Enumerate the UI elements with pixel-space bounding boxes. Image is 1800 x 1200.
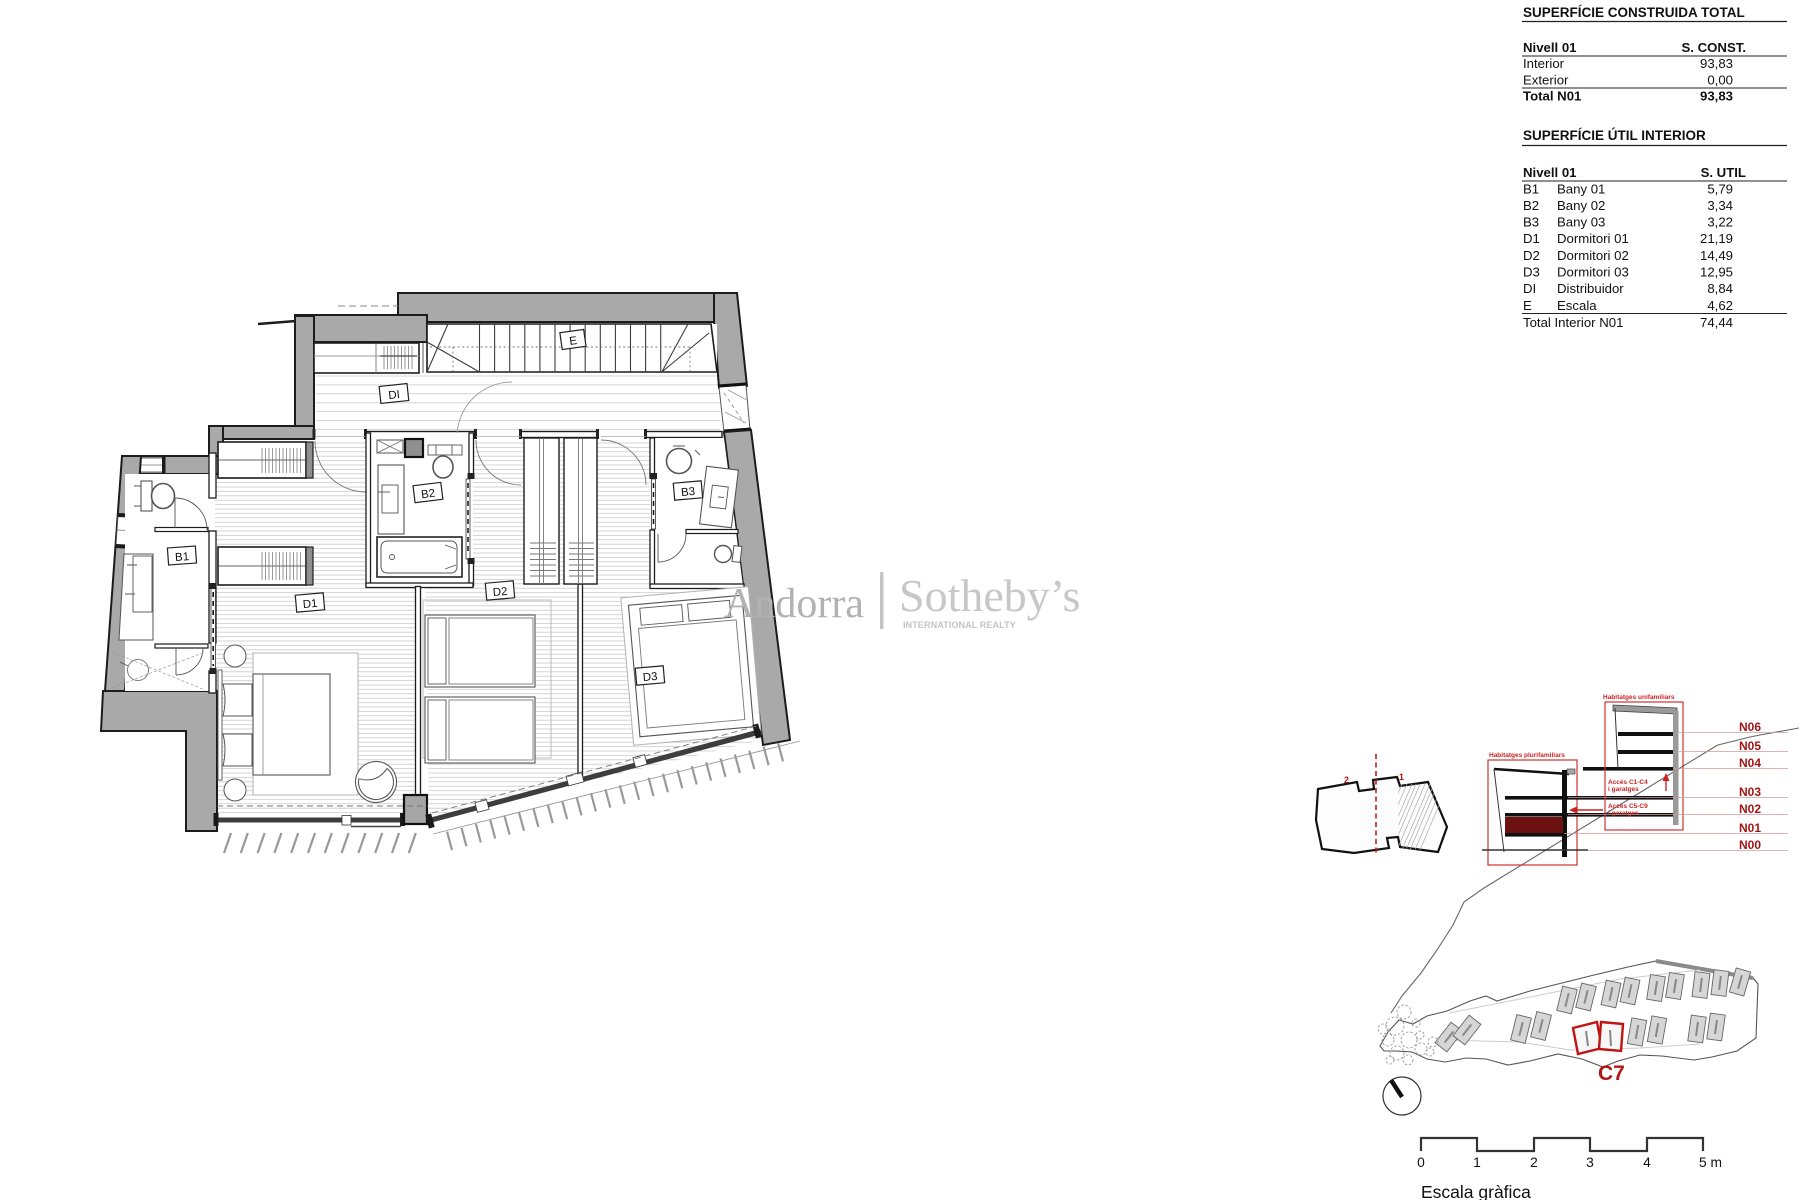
- svg-text:0: 0: [1417, 1155, 1425, 1170]
- svg-text:21,19: 21,19: [1700, 231, 1733, 246]
- svg-text:Bany 01: Bany 01: [1557, 182, 1605, 197]
- svg-text:3,34: 3,34: [1707, 198, 1733, 213]
- svg-text:B2: B2: [420, 488, 435, 502]
- svg-text:Dormitori 03: Dormitori 03: [1557, 265, 1629, 280]
- svg-text:2: 2: [1344, 775, 1349, 785]
- svg-text:Dormitori 02: Dormitori 02: [1557, 248, 1629, 263]
- svg-text:Nivell 01: Nivell 01: [1523, 40, 1577, 55]
- svg-text:i garatges: i garatges: [1608, 810, 1639, 817]
- svg-text:5 m: 5 m: [1699, 1155, 1722, 1170]
- svg-text:D3: D3: [1523, 265, 1540, 280]
- svg-text:12,95: 12,95: [1700, 265, 1733, 280]
- svg-text:N05: N05: [1739, 739, 1761, 753]
- svg-text:DI: DI: [388, 389, 401, 402]
- svg-text:Sotheby’s: Sotheby’s: [899, 570, 1080, 621]
- svg-text:14,49: 14,49: [1700, 248, 1733, 263]
- svg-text:DI: DI: [1523, 281, 1536, 296]
- svg-text:D1: D1: [302, 598, 318, 611]
- svg-text:Total N01: Total N01: [1523, 89, 1581, 104]
- svg-text:Escala: Escala: [1557, 298, 1597, 313]
- svg-text:Total Interior N01: Total Interior N01: [1523, 315, 1623, 330]
- svg-text:N04: N04: [1739, 756, 1761, 770]
- svg-text:4,62: 4,62: [1707, 298, 1733, 313]
- svg-text:74,44: 74,44: [1700, 315, 1733, 330]
- svg-text:B1: B1: [175, 551, 190, 564]
- svg-text:S. CONST.: S. CONST.: [1682, 40, 1746, 55]
- svg-text:93,83: 93,83: [1700, 89, 1733, 104]
- svg-text:Interior: Interior: [1523, 56, 1565, 71]
- svg-text:D1: D1: [1523, 231, 1540, 246]
- svg-text:Accés C5-C9: Accés C5-C9: [1608, 803, 1648, 810]
- svg-text:D3: D3: [642, 671, 658, 684]
- svg-text:2: 2: [1530, 1155, 1538, 1170]
- svg-text:Bany 02: Bany 02: [1557, 198, 1605, 213]
- svg-text:B3: B3: [1523, 215, 1539, 230]
- svg-text:1: 1: [1399, 772, 1404, 782]
- svg-text:B3: B3: [681, 486, 696, 499]
- svg-text:Habitatges plurifamiliars: Habitatges plurifamiliars: [1489, 752, 1565, 759]
- svg-text:B2: B2: [1523, 198, 1539, 213]
- svg-text:3: 3: [1586, 1155, 1594, 1170]
- svg-text:1: 1: [1473, 1155, 1481, 1170]
- svg-text:i garatges: i garatges: [1608, 786, 1639, 793]
- svg-text:N03: N03: [1739, 785, 1761, 799]
- svg-text:SUPERFÍCIE CONSTRUIDA TOTAL: SUPERFÍCIE CONSTRUIDA TOTAL: [1523, 5, 1745, 20]
- svg-text:Andorra: Andorra: [724, 581, 864, 627]
- svg-text:Nivell 01: Nivell 01: [1523, 165, 1577, 180]
- svg-text:E: E: [1523, 298, 1532, 313]
- svg-text:8,84: 8,84: [1707, 281, 1733, 296]
- svg-text:4: 4: [1643, 1155, 1651, 1170]
- svg-text:D2: D2: [492, 586, 508, 599]
- svg-text:S. UTIL: S. UTIL: [1701, 165, 1746, 180]
- svg-text:Escala gràfica: Escala gràfica: [1421, 1182, 1531, 1200]
- svg-text:Habitatges unifamiliars: Habitatges unifamiliars: [1603, 694, 1675, 701]
- svg-text:C7: C7: [1598, 1062, 1625, 1085]
- svg-text:D2: D2: [1523, 248, 1540, 263]
- svg-text:N02: N02: [1739, 802, 1761, 816]
- svg-text:3,22: 3,22: [1707, 215, 1733, 230]
- svg-text:5,79: 5,79: [1707, 182, 1733, 197]
- svg-text:N01: N01: [1739, 821, 1761, 835]
- svg-text:Bany 03: Bany 03: [1557, 215, 1605, 230]
- svg-text:INTERNATIONAL REALTY: INTERNATIONAL REALTY: [903, 620, 1016, 630]
- svg-text:B1: B1: [1523, 182, 1539, 197]
- svg-text:Distribuidor: Distribuidor: [1557, 281, 1624, 296]
- svg-text:N00: N00: [1739, 838, 1761, 852]
- svg-text:SUPERFÍCIE ÚTIL INTERIOR: SUPERFÍCIE ÚTIL INTERIOR: [1523, 128, 1706, 143]
- svg-text:93,83: 93,83: [1700, 56, 1733, 71]
- svg-text:0,00: 0,00: [1707, 73, 1733, 88]
- svg-text:N06: N06: [1739, 720, 1761, 734]
- svg-text:Dormitori 01: Dormitori 01: [1557, 231, 1629, 246]
- svg-text:Exterior: Exterior: [1523, 73, 1569, 88]
- svg-text:Accés C1-C4: Accés C1-C4: [1608, 779, 1648, 786]
